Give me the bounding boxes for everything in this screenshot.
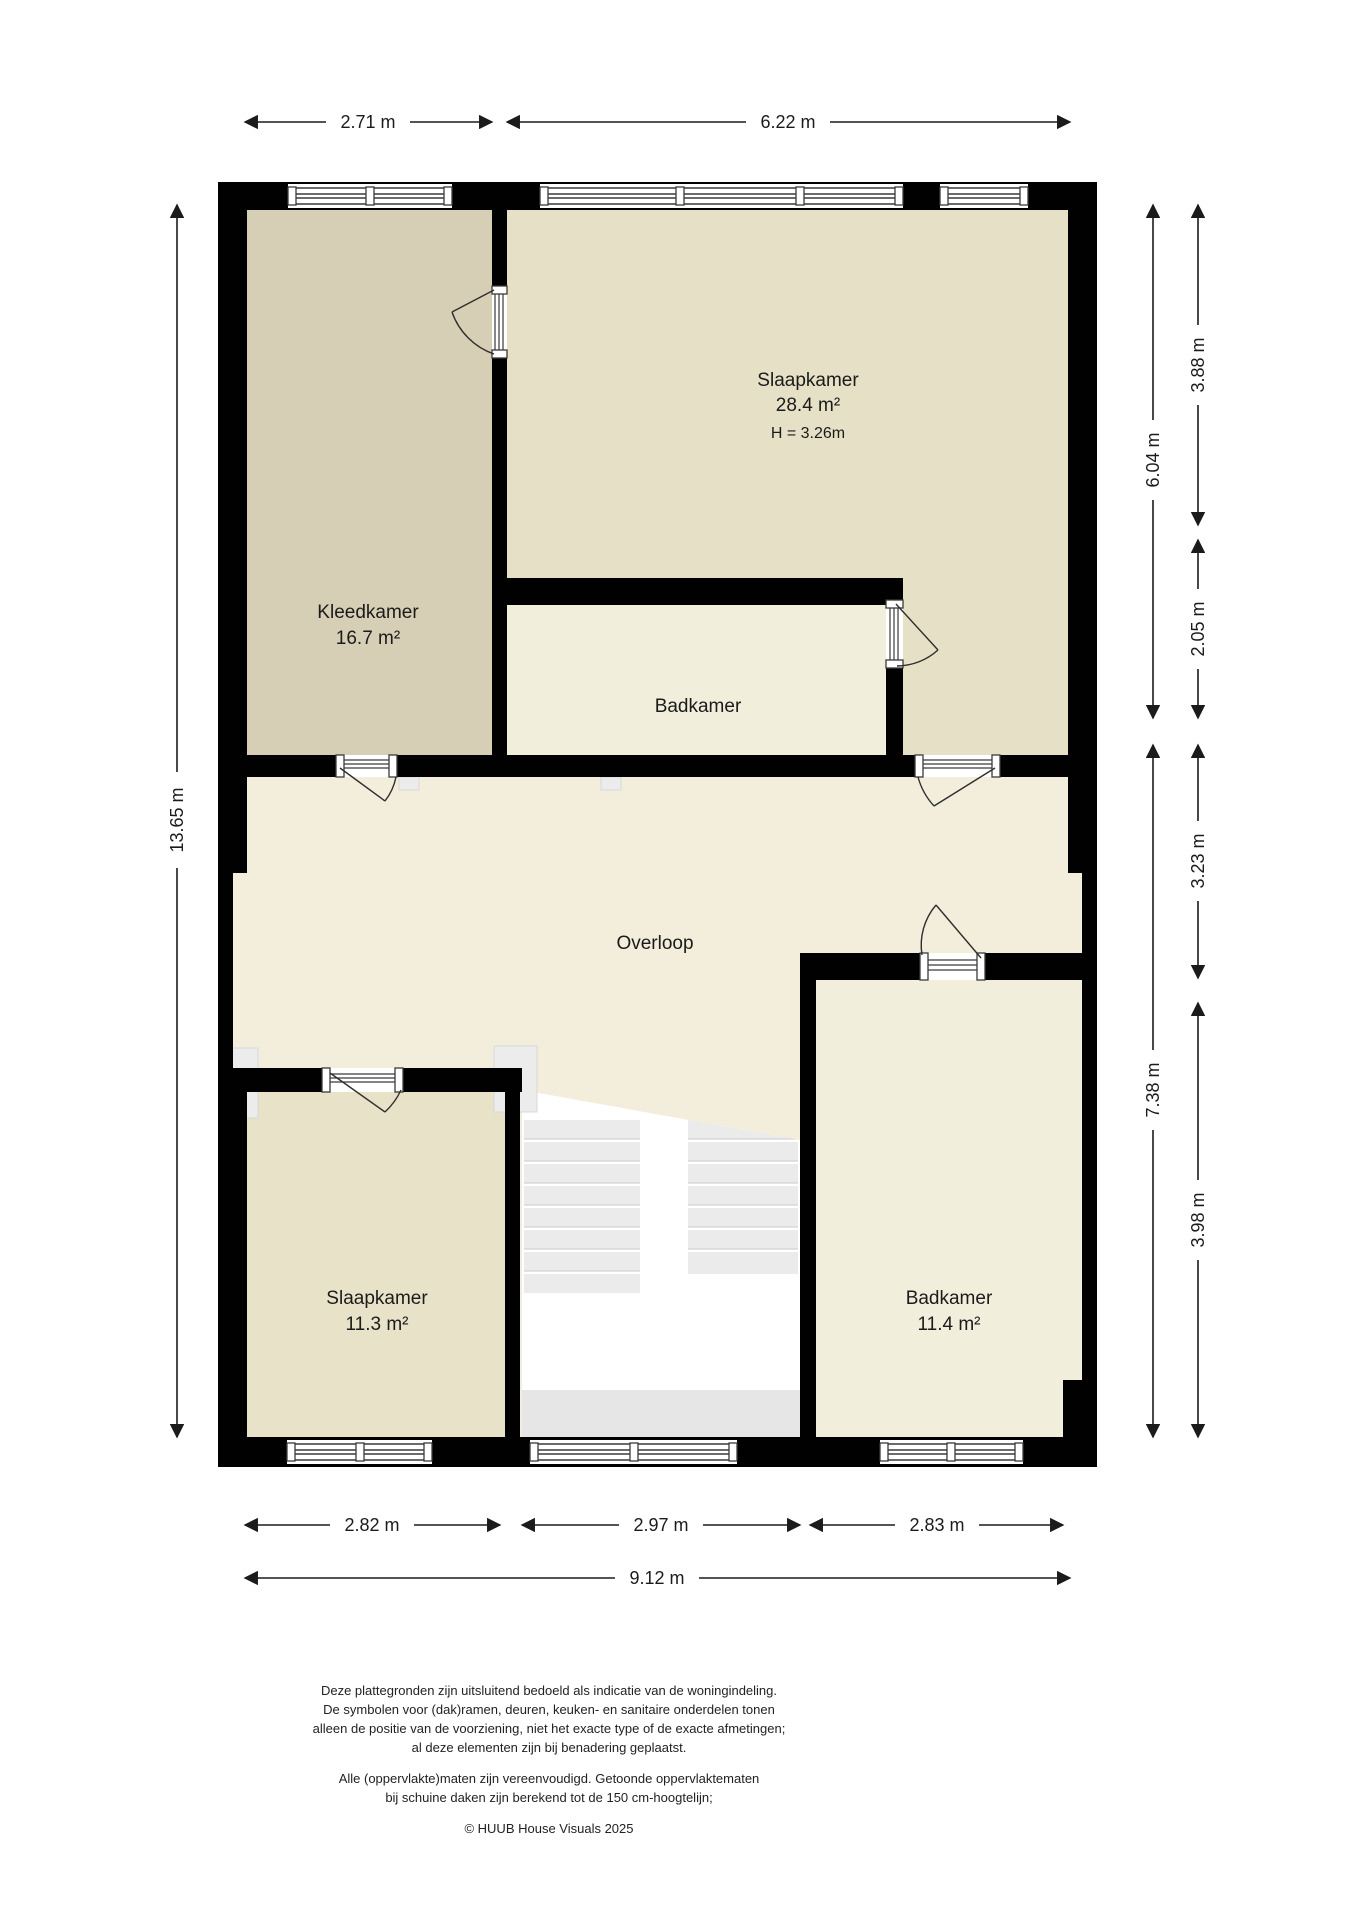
slaapkamer-bottom-floor [247,1092,505,1437]
svg-text:6.22 m: 6.22 m [760,112,815,132]
footer-disclaimer: Deze plattegronden zijn uitsluitend bedo… [309,1681,789,1838]
wall-badkamer2-top-2 [985,953,1097,980]
kleedkamer-name: Kleedkamer [317,602,419,623]
wall-divider-upper [492,208,507,286]
dim-right-inner-bottom: 7.38 m [1143,745,1163,1437]
svg-text:2.05 m: 2.05 m [1188,601,1208,656]
disclaimer-line: alleen de positie van de voorziening, ni… [309,1719,789,1738]
dim-right-outer-1: 3.88 m [1188,205,1208,525]
slaapkamer-top-height: H = 3.26m [771,425,845,442]
wall-left-mid [218,873,233,1068]
svg-text:2.97 m: 2.97 m [633,1515,688,1535]
badkamer-top-name: Badkamer [655,696,742,717]
overloop-name: Overloop [616,933,693,954]
badkamer-bottom-floor [816,980,1082,1437]
window-bottom-middle [530,1440,737,1464]
slaapkamer-top-area: 28.4 m² [776,395,840,416]
disclaimer-line: Deze plattegronden zijn uitsluitend bedo… [309,1681,789,1700]
dim-right-outer-3: 3.23 m [1188,745,1208,978]
badkamer-bottom-name: Badkamer [906,1288,993,1309]
window-top-right [940,184,1028,208]
kleedkamer-floor [245,210,492,755]
svg-text:7.38 m: 7.38 m [1143,1062,1163,1117]
threshold-mid [601,777,621,790]
svg-text:6.04 m: 6.04 m [1143,432,1163,487]
wall-stair-left [505,1068,520,1437]
window-bottom-right [880,1440,1023,1464]
wall-slaapkamer2-top-2 [403,1068,522,1092]
disclaimer-line: Alle (oppervlakte)maten zijn vereenvoudi… [309,1769,789,1788]
dim-bottom-1: 2.82 m [245,1515,500,1535]
badkamer-bottom-area: 11.4 m² [917,1314,980,1335]
window-bottom-left [287,1440,432,1464]
stairwell [522,1090,800,1437]
dim-top-right: 6.22 m [507,112,1070,132]
dim-bottom-3: 2.83 m [810,1515,1063,1535]
dim-left-total: 13.65 m [167,205,187,1437]
wall-slaapkamer2-top-1 [233,1068,322,1092]
dim-right-outer-2: 2.05 m [1188,540,1208,718]
wall-corner-bottom-right [1063,1380,1097,1440]
disclaimer-line: al deze elementen zijn bij benadering ge… [309,1738,789,1757]
slaapkamer-bottom-name: Slaapkamer [326,1288,428,1309]
disclaimer-line: De symbolen voor (dak)ramen, deuren, keu… [309,1700,789,1719]
dim-right-inner-top: 6.04 m [1143,205,1163,718]
svg-text:9.12 m: 9.12 m [629,1568,684,1588]
slaapkamer-bottom-area: 11.3 m² [345,1314,408,1335]
floorplan: Kleedkamer 16.7 m² Slaapkamer 28.4 m² H … [0,0,1358,1920]
svg-text:13.65 m: 13.65 m [167,787,187,852]
dim-bottom-2: 2.97 m [522,1515,800,1535]
svg-text:2.83 m: 2.83 m [909,1515,964,1535]
svg-text:3.23 m: 3.23 m [1188,833,1208,888]
dim-right-outer-4: 3.98 m [1188,1003,1208,1437]
wall-divider-lower [492,358,507,755]
wall-left-lower [218,1068,247,1467]
dim-bottom-total: 9.12 m [245,1568,1070,1588]
slaapkamer-top-name: Slaapkamer [757,370,859,391]
svg-text:2.71 m: 2.71 m [340,112,395,132]
svg-text:3.88 m: 3.88 m [1188,337,1208,392]
wall-badkamer2-top-1 [800,953,920,980]
wall-overloop-top-1 [233,755,336,777]
wall-overloop-top-3 [1000,755,1082,777]
threshold-left [399,777,419,790]
stair-landing [522,1390,800,1437]
dim-top-left: 2.71 m [245,112,492,132]
kleedkamer-area: 16.7 m² [336,628,400,649]
wall-badkamer-top [492,578,903,605]
wall-badkamer-right-1 [886,578,903,600]
badkamer-top-floor [507,605,886,755]
window-top-left [288,184,452,208]
wall-overloop-top-2 [397,755,915,777]
wall-stair-right [800,953,816,1437]
window-top-middle [540,184,903,208]
svg-text:2.82 m: 2.82 m [344,1515,399,1535]
copyright: © HUUB House Visuals 2025 [309,1819,789,1838]
wall-badkamer-right-2 [886,668,903,757]
disclaimer-line: bij schuine daken zijn berekend tot de 1… [309,1788,789,1807]
svg-text:3.98 m: 3.98 m [1188,1192,1208,1247]
